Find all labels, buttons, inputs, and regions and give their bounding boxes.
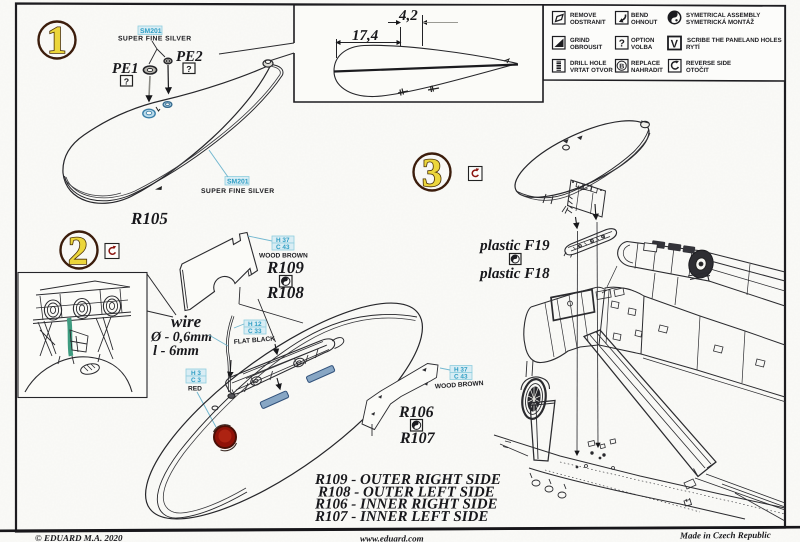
svg-text:REVERSE SIDE: REVERSE SIDE	[686, 60, 731, 67]
svg-text:OBROUSIT: OBROUSIT	[570, 44, 602, 51]
svg-text:SYMETRICKÁ MONTÁŽ: SYMETRICKÁ MONTÁŽ	[686, 18, 754, 26]
svg-text:GRIND: GRIND	[570, 37, 590, 44]
svg-text:17,4: 17,4	[352, 28, 379, 44]
svg-text:R105: R105	[130, 209, 168, 228]
svg-text:SM201: SM201	[140, 28, 162, 35]
svg-text:H 37: H 37	[454, 367, 468, 374]
svg-text:Made in Czech Republic: Made in Czech Republic	[679, 530, 771, 541]
svg-text:4,2: 4,2	[398, 8, 418, 24]
svg-text:l - 6mm: l - 6mm	[153, 343, 199, 359]
svg-text:plastic F19: plastic F19	[478, 237, 550, 254]
svg-text:www.eduard.com: www.eduard.com	[360, 534, 424, 542]
svg-text:SCRIBE THE PANELAND HOLES: SCRIBE THE PANELAND HOLES	[687, 37, 782, 44]
svg-text:C 43: C 43	[454, 374, 468, 381]
svg-text:R108: R108	[266, 283, 304, 302]
svg-text:C 3: C 3	[191, 377, 201, 384]
svg-text:ODSTRANIT: ODSTRANIT	[570, 19, 606, 26]
svg-text:VOLBA: VOLBA	[631, 44, 653, 51]
svg-text:V: V	[671, 38, 679, 50]
svg-text:OPTION: OPTION	[631, 37, 654, 44]
svg-text:© EDUARD M.A. 2020: © EDUARD M.A. 2020	[35, 533, 123, 542]
svg-text:1: 1	[47, 19, 67, 62]
svg-text:SM201: SM201	[227, 179, 249, 186]
svg-text:H 12: H 12	[248, 321, 262, 328]
svg-text:SUPER FINE SILVER: SUPER FINE SILVER	[201, 188, 275, 195]
svg-text:?: ?	[186, 64, 191, 74]
svg-text:H 37: H 37	[276, 237, 290, 244]
svg-text:B: B	[619, 64, 624, 71]
svg-text:?: ?	[619, 39, 625, 50]
svg-text:REPLACE: REPLACE	[631, 60, 660, 67]
svg-text:VRTAT OTVOR: VRTAT OTVOR	[570, 67, 613, 74]
svg-text:plastic F18: plastic F18	[478, 265, 550, 282]
svg-text:C 33: C 33	[248, 328, 262, 335]
svg-text:R107 - INNER LEFT SIDE: R107 - INNER LEFT SIDE	[314, 509, 488, 525]
svg-text:OHNOUT: OHNOUT	[631, 19, 658, 26]
svg-text:R109: R109	[266, 258, 304, 277]
svg-text:PE1: PE1	[112, 61, 139, 77]
svg-text:R107: R107	[399, 430, 436, 447]
svg-text:?: ?	[124, 76, 129, 86]
svg-text:C 43: C 43	[276, 244, 290, 251]
svg-text:DRILL HOLE: DRILL HOLE	[570, 60, 606, 67]
svg-text:SUPER FINE SILVER: SUPER FINE SILVER	[118, 36, 192, 43]
svg-text:2: 2	[68, 228, 88, 273]
svg-text:R106: R106	[398, 404, 434, 421]
svg-text:3: 3	[422, 150, 442, 195]
svg-text:RYTÍ: RYTÍ	[686, 43, 700, 51]
svg-text:SYMETRICAL ASSEMBLY: SYMETRICAL ASSEMBLY	[686, 12, 760, 19]
svg-text:wire: wire	[171, 312, 202, 331]
svg-text:NAHRADIT: NAHRADIT	[631, 67, 663, 74]
svg-text:H 3: H 3	[191, 370, 201, 377]
svg-text:OTOČIT: OTOČIT	[686, 66, 709, 74]
svg-text:REMOVE: REMOVE	[570, 12, 596, 19]
svg-text:RED: RED	[188, 386, 202, 393]
svg-text:BEND: BEND	[631, 12, 649, 19]
